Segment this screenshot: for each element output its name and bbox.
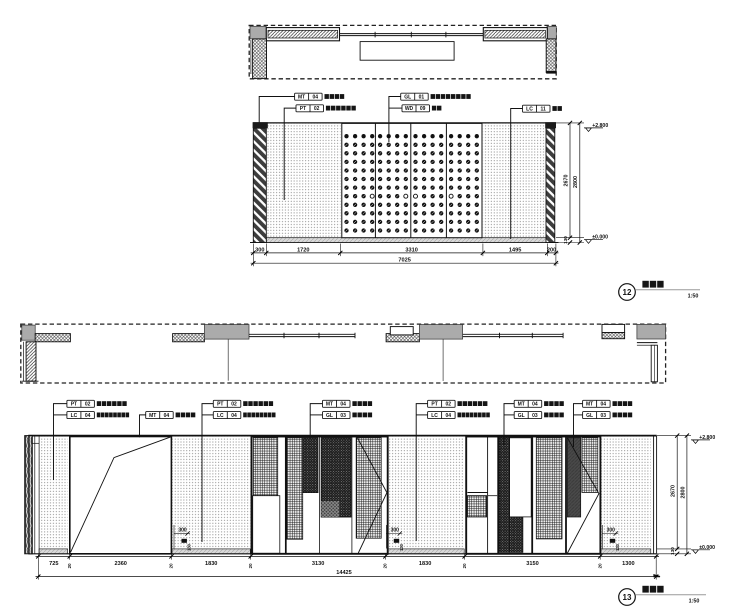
- svg-text:1495: 1495: [509, 247, 521, 253]
- svg-text:LC: LC: [526, 107, 533, 113]
- svg-text:04: 04: [313, 95, 319, 101]
- svg-text:±0.000: ±0.000: [592, 235, 608, 241]
- svg-text:11: 11: [541, 107, 547, 113]
- svg-text:1720: 1720: [297, 247, 309, 253]
- svg-text:300: 300: [391, 528, 400, 534]
- svg-text:20: 20: [248, 563, 253, 568]
- svg-text:GL: GL: [326, 413, 333, 419]
- svg-text:2800: 2800: [573, 176, 579, 188]
- svg-text:13: 13: [623, 593, 632, 602]
- svg-text:20: 20: [383, 563, 388, 568]
- svg-text:2800: 2800: [680, 487, 686, 499]
- svg-text:01: 01: [419, 95, 425, 101]
- svg-text:130: 130: [399, 543, 404, 551]
- svg-text:14425: 14425: [336, 570, 352, 576]
- svg-text:02: 02: [314, 106, 320, 112]
- svg-text:03: 03: [340, 413, 346, 419]
- svg-text:2670: 2670: [563, 175, 569, 187]
- svg-text:1:50: 1:50: [689, 599, 700, 605]
- svg-text:MT: MT: [298, 95, 305, 101]
- svg-text:7025: 7025: [398, 258, 410, 264]
- svg-text:130: 130: [670, 547, 675, 555]
- svg-text:04: 04: [164, 413, 170, 419]
- svg-text:130: 130: [187, 543, 192, 551]
- svg-text:MT: MT: [586, 402, 593, 408]
- svg-text:02: 02: [446, 402, 452, 408]
- svg-text:±0.000: ±0.000: [699, 545, 715, 551]
- svg-text:+2.800: +2.800: [699, 435, 715, 441]
- svg-text:20: 20: [462, 563, 467, 568]
- svg-text:300: 300: [178, 528, 187, 534]
- svg-text:02: 02: [85, 402, 91, 408]
- svg-text:300: 300: [607, 528, 616, 534]
- svg-text:725: 725: [49, 561, 58, 567]
- svg-text:PT: PT: [217, 402, 223, 408]
- svg-text:03: 03: [532, 413, 538, 419]
- svg-text:03: 03: [601, 413, 607, 419]
- svg-text:12: 12: [623, 288, 632, 297]
- svg-text:1830: 1830: [419, 561, 431, 567]
- svg-text:LC: LC: [217, 413, 224, 419]
- svg-text:1:50: 1:50: [688, 294, 699, 300]
- svg-text:GL: GL: [518, 413, 525, 419]
- svg-text:02: 02: [231, 402, 237, 408]
- svg-text:2360: 2360: [114, 561, 126, 567]
- svg-text:1300: 1300: [622, 561, 634, 567]
- svg-text:LC: LC: [71, 413, 78, 419]
- svg-text:LC: LC: [431, 413, 438, 419]
- svg-text:PT: PT: [71, 402, 77, 408]
- svg-text:GL: GL: [586, 413, 593, 419]
- svg-text:04: 04: [85, 413, 91, 419]
- svg-text:MT: MT: [149, 413, 156, 419]
- svg-text:GL: GL: [404, 95, 411, 101]
- svg-text:20: 20: [597, 563, 602, 568]
- svg-text:04: 04: [231, 413, 237, 419]
- svg-text:04: 04: [532, 402, 538, 408]
- svg-text:2670: 2670: [671, 485, 677, 497]
- svg-text:200: 200: [547, 247, 556, 253]
- svg-text:3130: 3130: [312, 561, 324, 567]
- svg-text:130: 130: [563, 236, 568, 244]
- svg-text:+2.800: +2.800: [592, 123, 608, 129]
- svg-text:20: 20: [67, 563, 72, 568]
- svg-text:1830: 1830: [205, 561, 217, 567]
- svg-text:MT: MT: [326, 402, 333, 408]
- svg-text:WD: WD: [405, 106, 414, 112]
- svg-text:04: 04: [340, 402, 346, 408]
- svg-text:PT: PT: [431, 402, 437, 408]
- svg-text:300: 300: [255, 247, 264, 253]
- svg-text:130: 130: [615, 543, 620, 551]
- svg-text:3150: 3150: [526, 561, 538, 567]
- svg-text:PT: PT: [300, 106, 306, 112]
- svg-text:09: 09: [420, 106, 426, 112]
- svg-text:20: 20: [169, 563, 174, 568]
- svg-text:3310: 3310: [405, 247, 417, 253]
- svg-text:MT: MT: [518, 402, 525, 408]
- svg-text:04: 04: [446, 413, 452, 419]
- svg-text:04: 04: [601, 402, 607, 408]
